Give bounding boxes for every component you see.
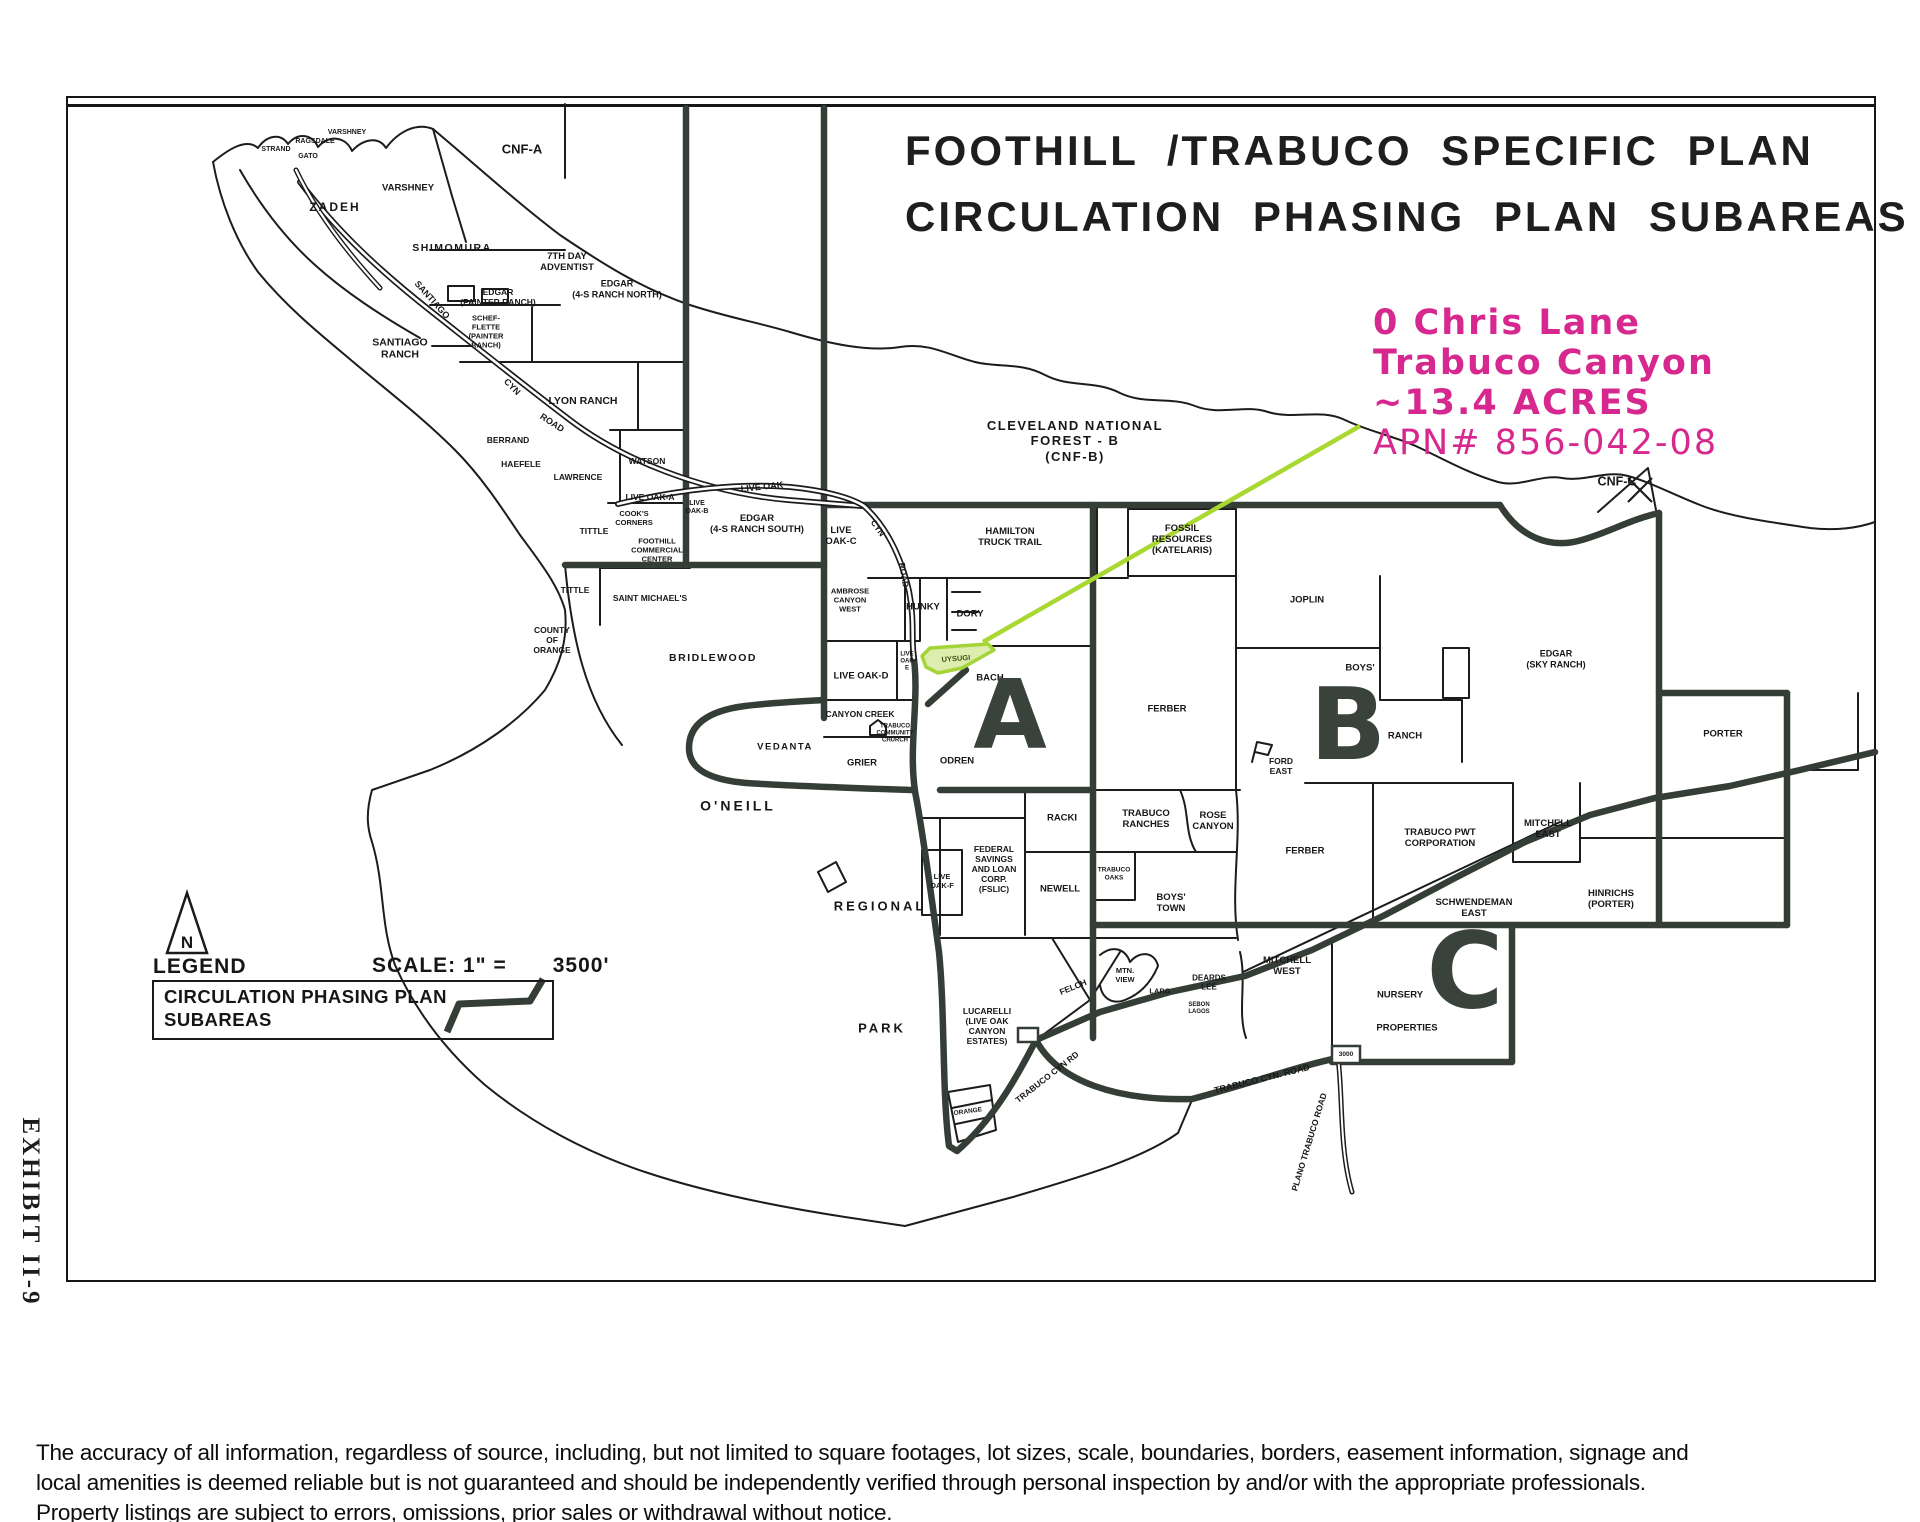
legend-heading: LEGEND — [153, 955, 247, 979]
disclaimer-line2: local amenities is deemed reliable but i… — [36, 1468, 1916, 1498]
listing-address: 0 Chris Lane — [1373, 303, 1718, 343]
map-title: FOOTHILL /TRABUCO SPECIFIC PLAN CIRCULAT… — [905, 118, 1909, 250]
legend-entry-line1: CIRCULATION PHASING PLAN — [164, 985, 447, 1008]
map-title-line1: FOOTHILL /TRABUCO SPECIFIC PLAN — [905, 118, 1909, 184]
listing-apn: APN# 856-042-08 — [1373, 423, 1718, 463]
listing-acreage: ~13.4 ACRES — [1373, 383, 1718, 423]
legend-entry-line2: SUBAREAS — [164, 1008, 447, 1031]
scale-text: SCALE: 1" =3500' — [372, 954, 609, 978]
map-border-frame — [66, 96, 1876, 1282]
map-border-double-line — [66, 104, 1875, 107]
listing-annotation: 0 Chris Lane Trabuco Canyon ~13.4 ACRES … — [1373, 303, 1718, 463]
scale-label: SCALE: 1" = — [372, 954, 507, 977]
scanned-map-page: UYSUGI N CNF-AZADEHVARSHNEYVARSHNEYRAGSD… — [0, 0, 1920, 1522]
listing-city: Trabuco Canyon — [1373, 343, 1718, 383]
scale-value: 3500' — [553, 954, 610, 977]
disclaimer-line1: The accuracy of all information, regardl… — [36, 1438, 1916, 1468]
disclaimer-line3: Property listings are subject to errors,… — [36, 1498, 1916, 1522]
disclaimer-text: The accuracy of all information, regardl… — [36, 1438, 1916, 1522]
map-title-line2: CIRCULATION PHASING PLAN SUBAREAS — [905, 184, 1909, 250]
legend-box: CIRCULATION PHASING PLAN SUBAREAS — [152, 980, 554, 1040]
exhibit-label: EXHIBIT II-9 — [16, 1117, 44, 1306]
